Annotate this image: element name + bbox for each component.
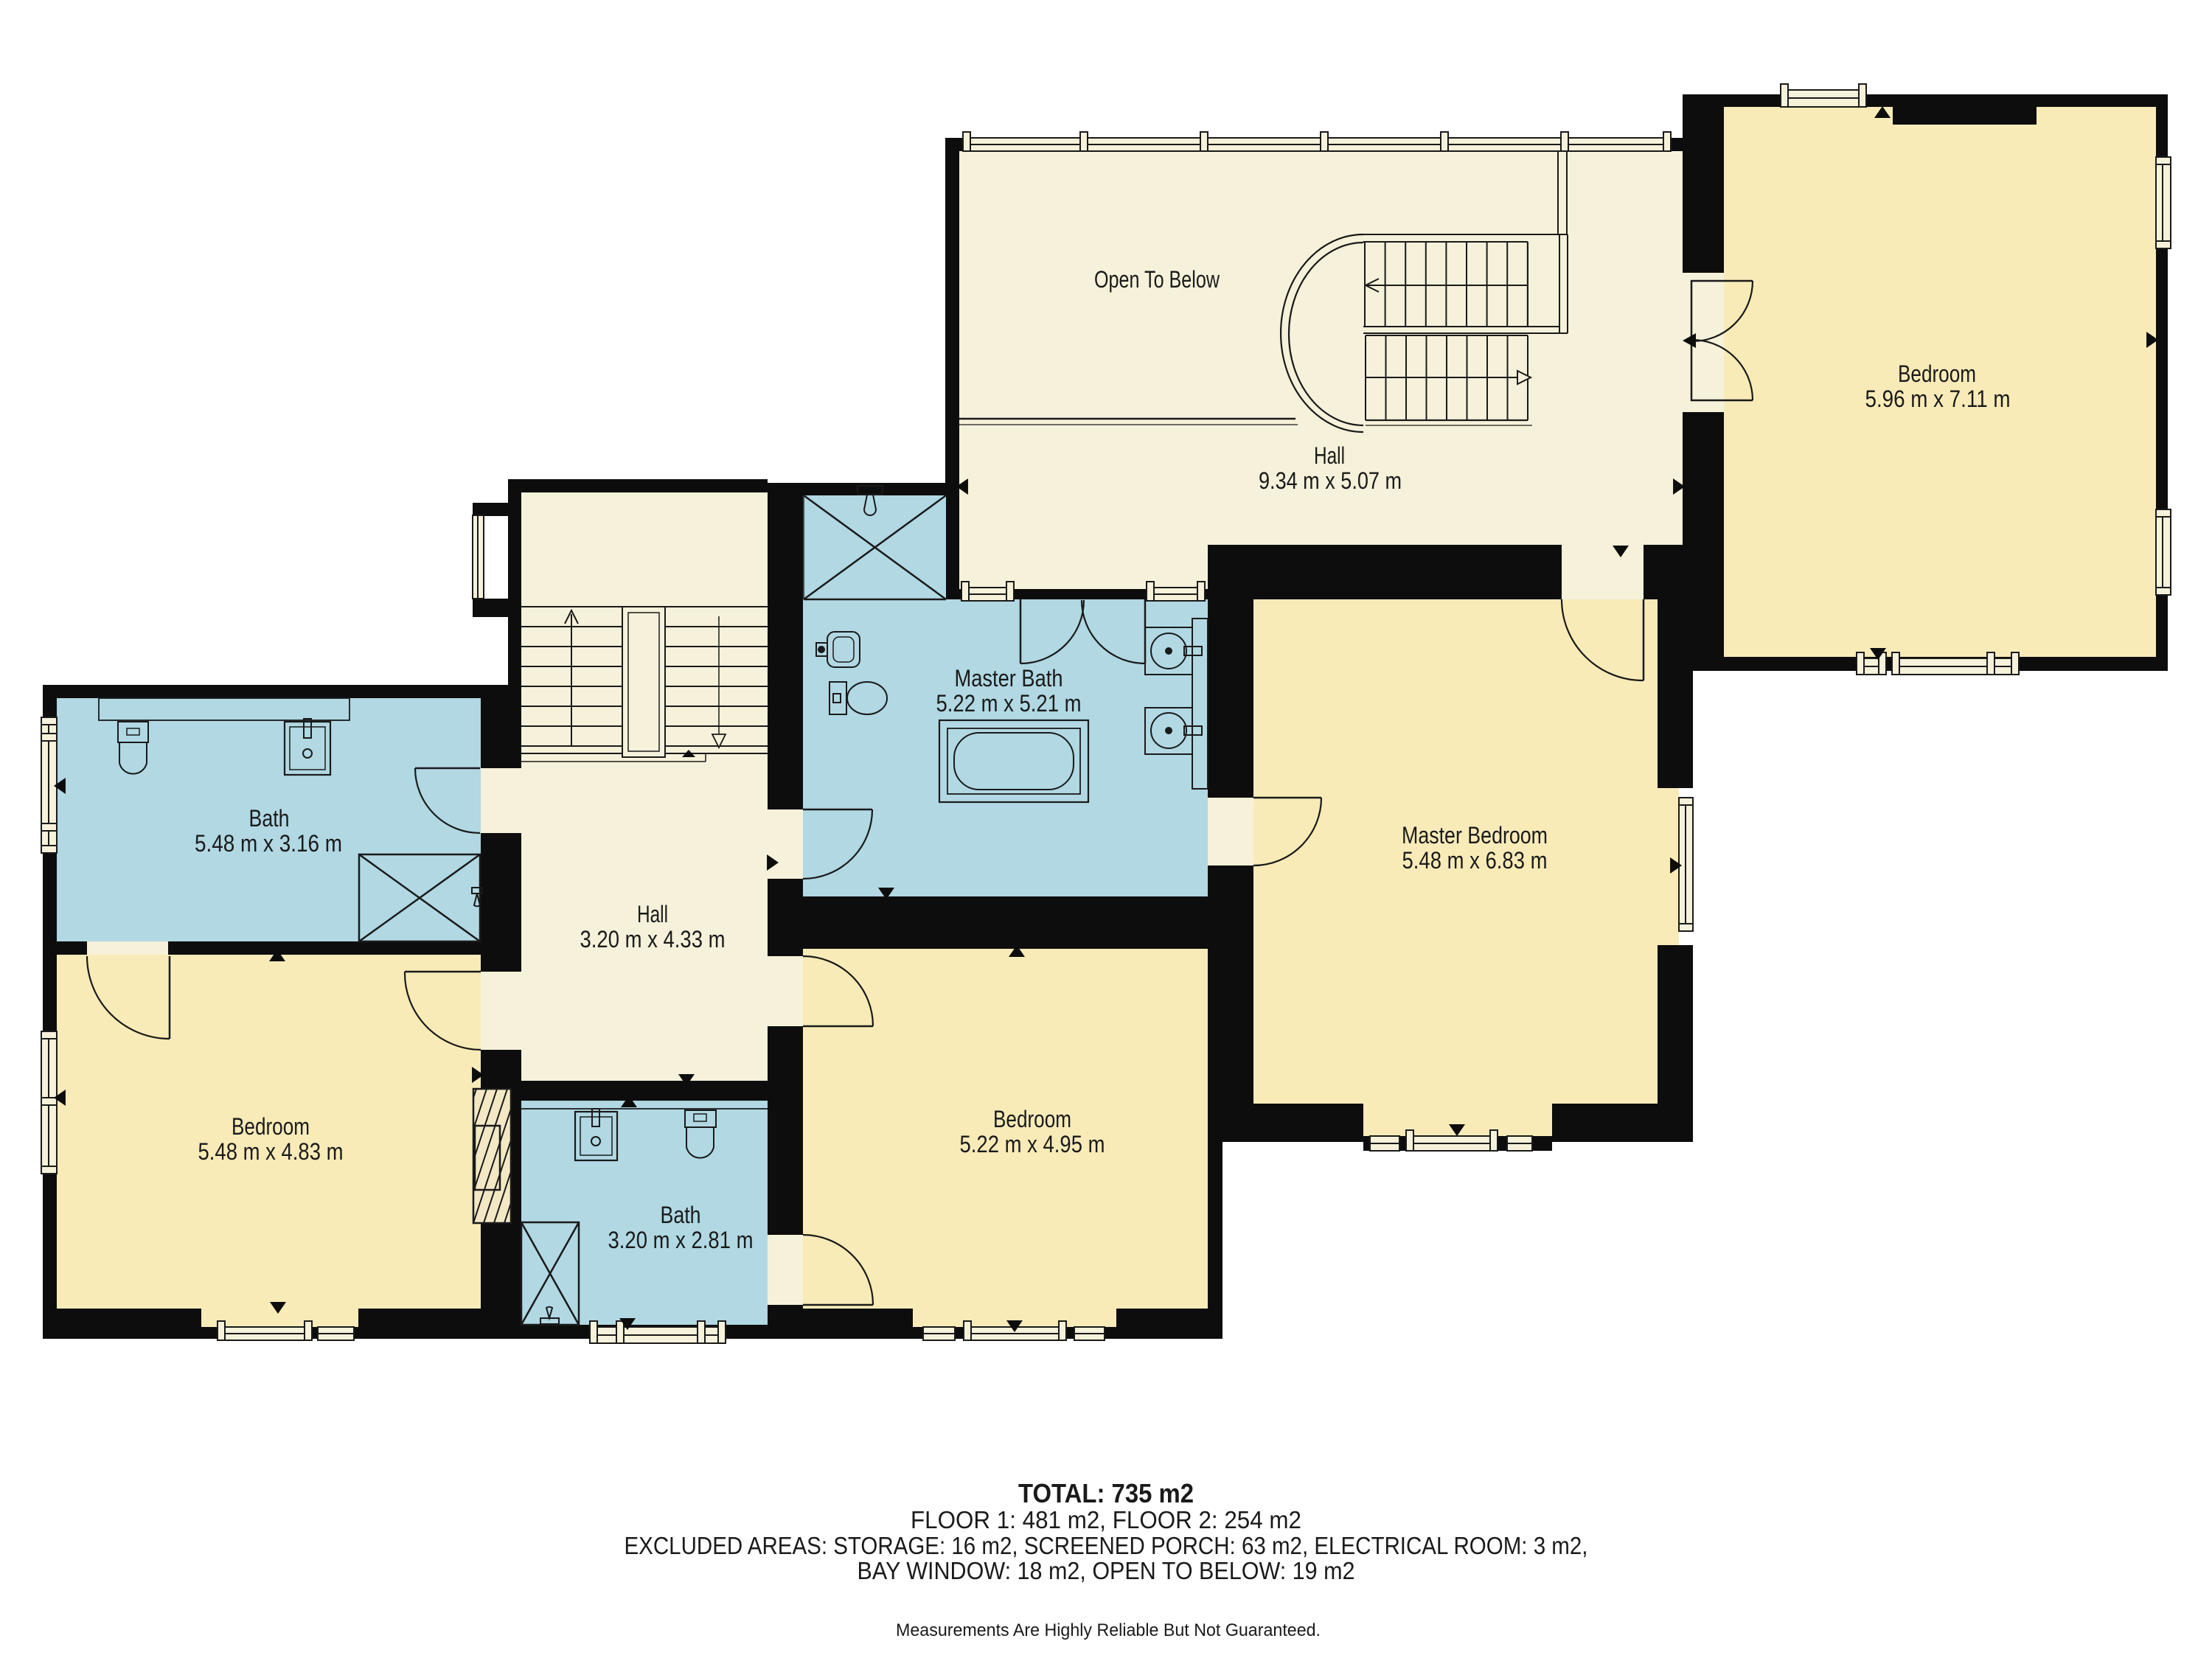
svg-text:Bedroom: Bedroom bbox=[232, 1113, 310, 1140]
svg-text:Open To Below: Open To Below bbox=[1094, 266, 1220, 293]
svg-text:EXCLUDED AREAS: STORAGE: 16 m2: EXCLUDED AREAS: STORAGE: 16 m2, SCREENED… bbox=[625, 1532, 1588, 1559]
svg-text:9.34 m x 5.07 m: 9.34 m x 5.07 m bbox=[1259, 467, 1402, 494]
svg-text:Bedroom: Bedroom bbox=[1898, 360, 1976, 387]
svg-text:BAY WINDOW: 18 m2, OPEN TO BEL: BAY WINDOW: 18 m2, OPEN TO BELOW: 19 m2 bbox=[858, 1557, 1355, 1584]
svg-text:TOTAL: 735 m2: TOTAL: 735 m2 bbox=[1018, 1478, 1194, 1508]
svg-text:Hall: Hall bbox=[637, 901, 668, 927]
svg-text:3.20 m x 4.33 m: 3.20 m x 4.33 m bbox=[580, 926, 726, 952]
svg-text:5.22 m x 4.95 m: 5.22 m x 4.95 m bbox=[960, 1131, 1105, 1157]
svg-text:Measurements Are Highly Reliab: Measurements Are Highly Reliable But Not… bbox=[896, 1620, 1321, 1640]
svg-text:Master Bedroom: Master Bedroom bbox=[1402, 822, 1548, 849]
svg-text:5.48 m x 4.83 m: 5.48 m x 4.83 m bbox=[198, 1138, 344, 1165]
svg-text:Bath: Bath bbox=[661, 1202, 701, 1228]
svg-text:3.20 m x 2.81 m: 3.20 m x 2.81 m bbox=[608, 1227, 754, 1253]
svg-text:FLOOR 1: 481 m2, FLOOR 2: 254: FLOOR 1: 481 m2, FLOOR 2: 254 m2 bbox=[911, 1506, 1301, 1533]
svg-text:Bath: Bath bbox=[249, 805, 290, 832]
svg-text:Bedroom: Bedroom bbox=[993, 1106, 1071, 1132]
svg-text:Hall: Hall bbox=[1314, 442, 1345, 469]
svg-text:5.48 m x 3.16 m: 5.48 m x 3.16 m bbox=[195, 830, 342, 857]
svg-text:5.48 m x 6.83 m: 5.48 m x 6.83 m bbox=[1402, 847, 1548, 874]
svg-text:Master Bath: Master Bath bbox=[955, 665, 1063, 692]
svg-text:5.96 m x 7.11 m: 5.96 m x 7.11 m bbox=[1865, 386, 2011, 412]
svg-text:5.22 m x 5.21 m: 5.22 m x 5.21 m bbox=[936, 690, 1082, 717]
